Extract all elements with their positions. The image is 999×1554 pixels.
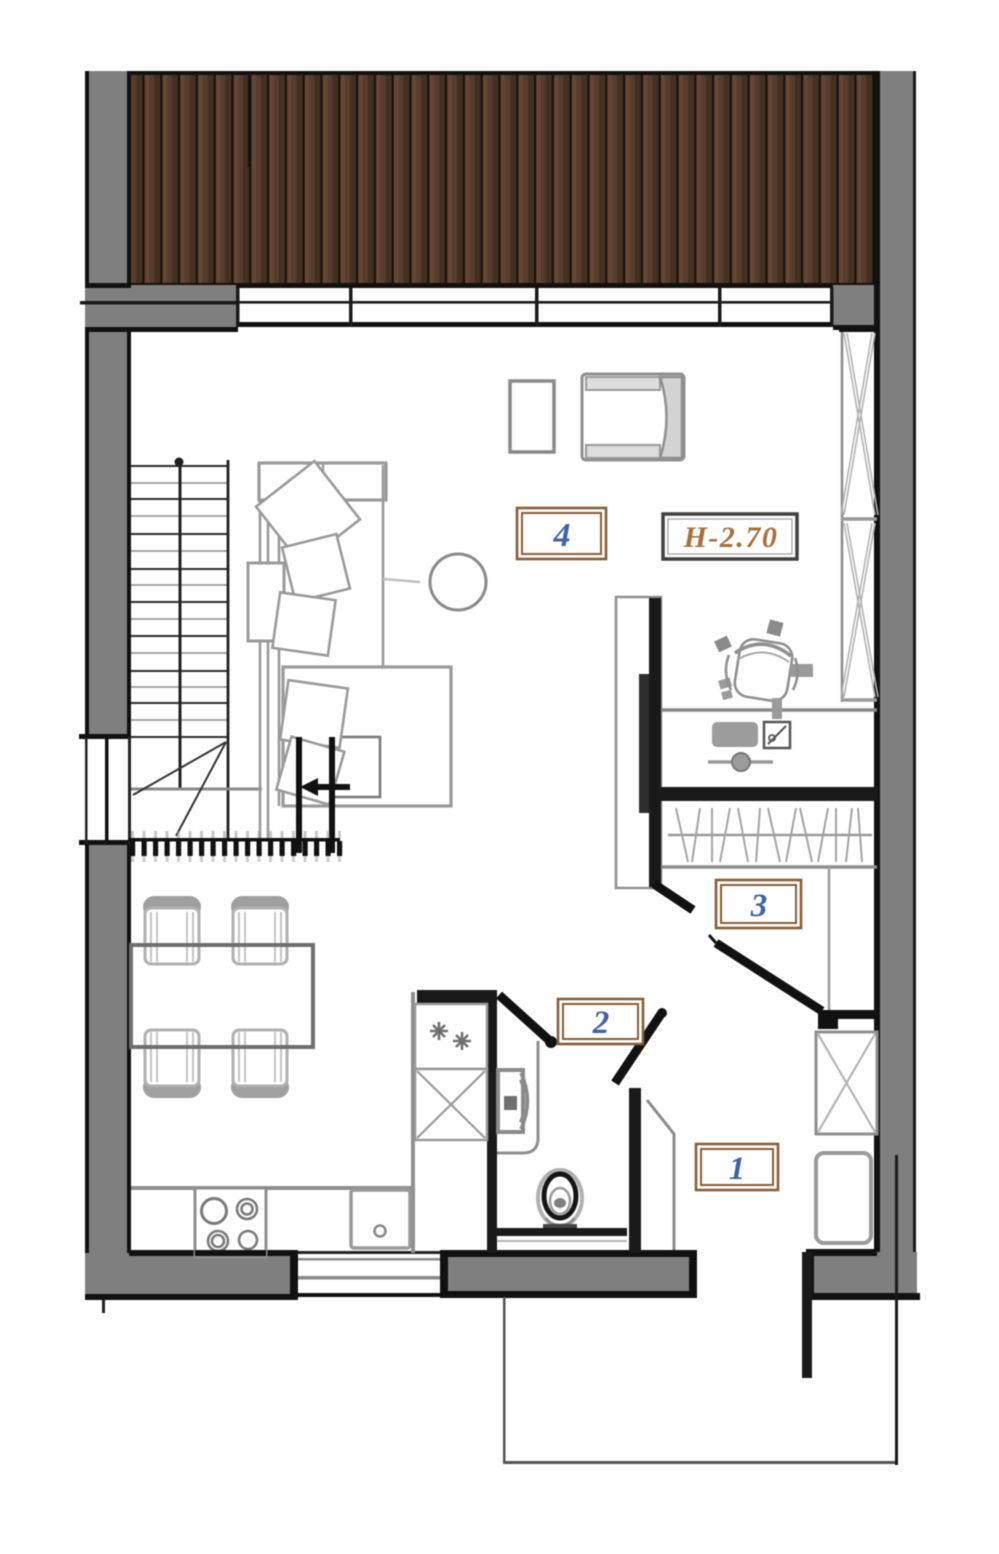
- svg-text:3: 3: [750, 888, 768, 924]
- svg-text:1: 1: [729, 1151, 746, 1187]
- svg-text:2: 2: [592, 1005, 610, 1041]
- svg-text:4: 4: [553, 517, 571, 554]
- svg-text:H-2.70: H-2.70: [683, 521, 779, 554]
